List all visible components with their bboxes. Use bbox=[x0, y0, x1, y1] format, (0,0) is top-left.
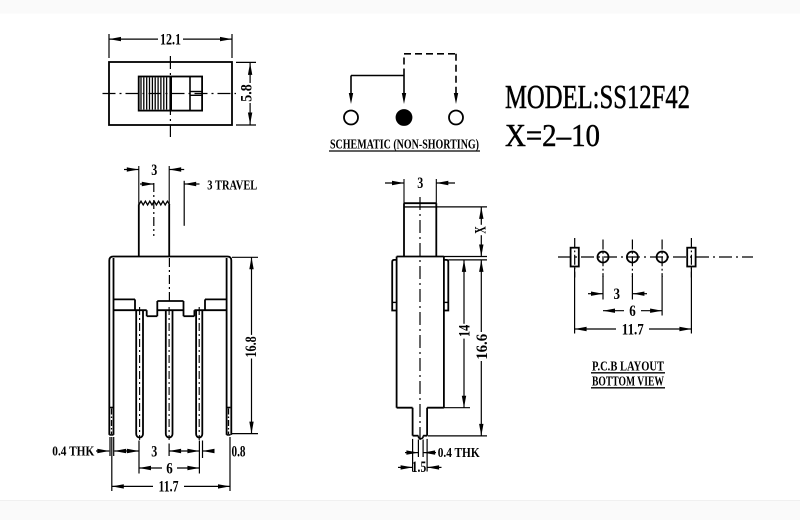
svg-text:3: 3 bbox=[417, 175, 423, 192]
svg-text:6: 6 bbox=[629, 303, 636, 320]
svg-text:12.1: 12.1 bbox=[160, 31, 181, 48]
svg-text:0.8: 0.8 bbox=[232, 443, 246, 460]
svg-text:11.7: 11.7 bbox=[159, 479, 179, 496]
svg-text:SCHEMATIC (NON-SHORTING): SCHEMATIC (NON-SHORTING) bbox=[330, 137, 479, 152]
svg-text:6: 6 bbox=[166, 460, 173, 477]
svg-text:16.6: 16.6 bbox=[474, 334, 491, 360]
svg-text:0.4 THK: 0.4 THK bbox=[438, 445, 480, 460]
svg-text:3: 3 bbox=[151, 443, 157, 460]
svg-text:P.C.B LAYOUT: P.C.B LAYOUT bbox=[592, 358, 664, 373]
svg-text:5.8: 5.8 bbox=[238, 84, 255, 102]
svg-text:3: 3 bbox=[614, 286, 621, 303]
svg-text:3 TRAVEL: 3 TRAVEL bbox=[207, 177, 257, 192]
svg-text:X=2–10: X=2–10 bbox=[505, 117, 600, 153]
svg-text:14: 14 bbox=[456, 325, 473, 337]
svg-text:3: 3 bbox=[151, 162, 157, 179]
svg-text:BOTTOM VIEW: BOTTOM VIEW bbox=[592, 373, 664, 388]
svg-text:X: X bbox=[473, 226, 490, 234]
svg-text:16.8: 16.8 bbox=[243, 336, 260, 357]
svg-text:11.7: 11.7 bbox=[622, 321, 644, 338]
svg-text:1.5: 1.5 bbox=[412, 459, 426, 476]
svg-text:MODEL:SS12F42: MODEL:SS12F42 bbox=[505, 79, 690, 116]
svg-text:0.4 THK: 0.4 THK bbox=[52, 443, 94, 458]
